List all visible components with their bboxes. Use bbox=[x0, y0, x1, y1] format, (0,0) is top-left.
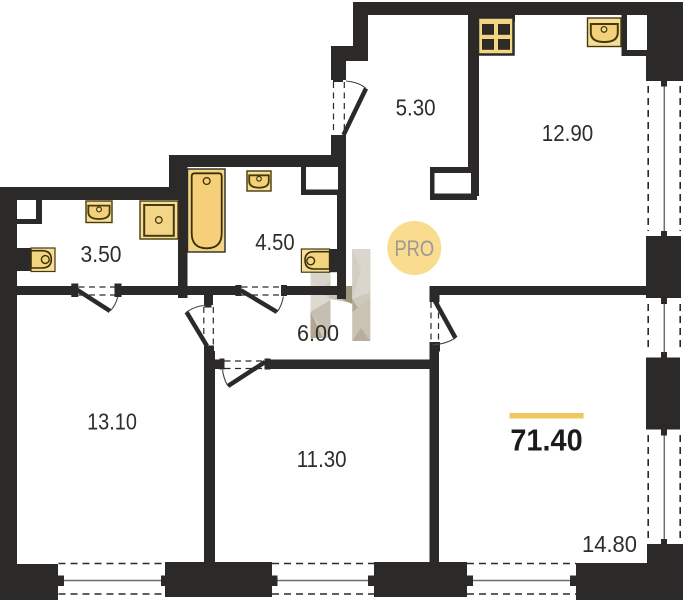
svg-text:71.40: 71.40 bbox=[510, 424, 582, 458]
svg-text:4.50: 4.50 bbox=[255, 229, 294, 255]
svg-text:13.10: 13.10 bbox=[87, 408, 137, 434]
svg-text:PRO: PRO bbox=[394, 236, 434, 261]
svg-text:3.50: 3.50 bbox=[81, 241, 122, 267]
svg-text:14.80: 14.80 bbox=[582, 531, 637, 557]
svg-text:6.00: 6.00 bbox=[297, 320, 339, 346]
svg-text:5.30: 5.30 bbox=[396, 95, 436, 121]
svg-text:11.30: 11.30 bbox=[297, 446, 347, 472]
svg-text:12.90: 12.90 bbox=[542, 120, 594, 146]
